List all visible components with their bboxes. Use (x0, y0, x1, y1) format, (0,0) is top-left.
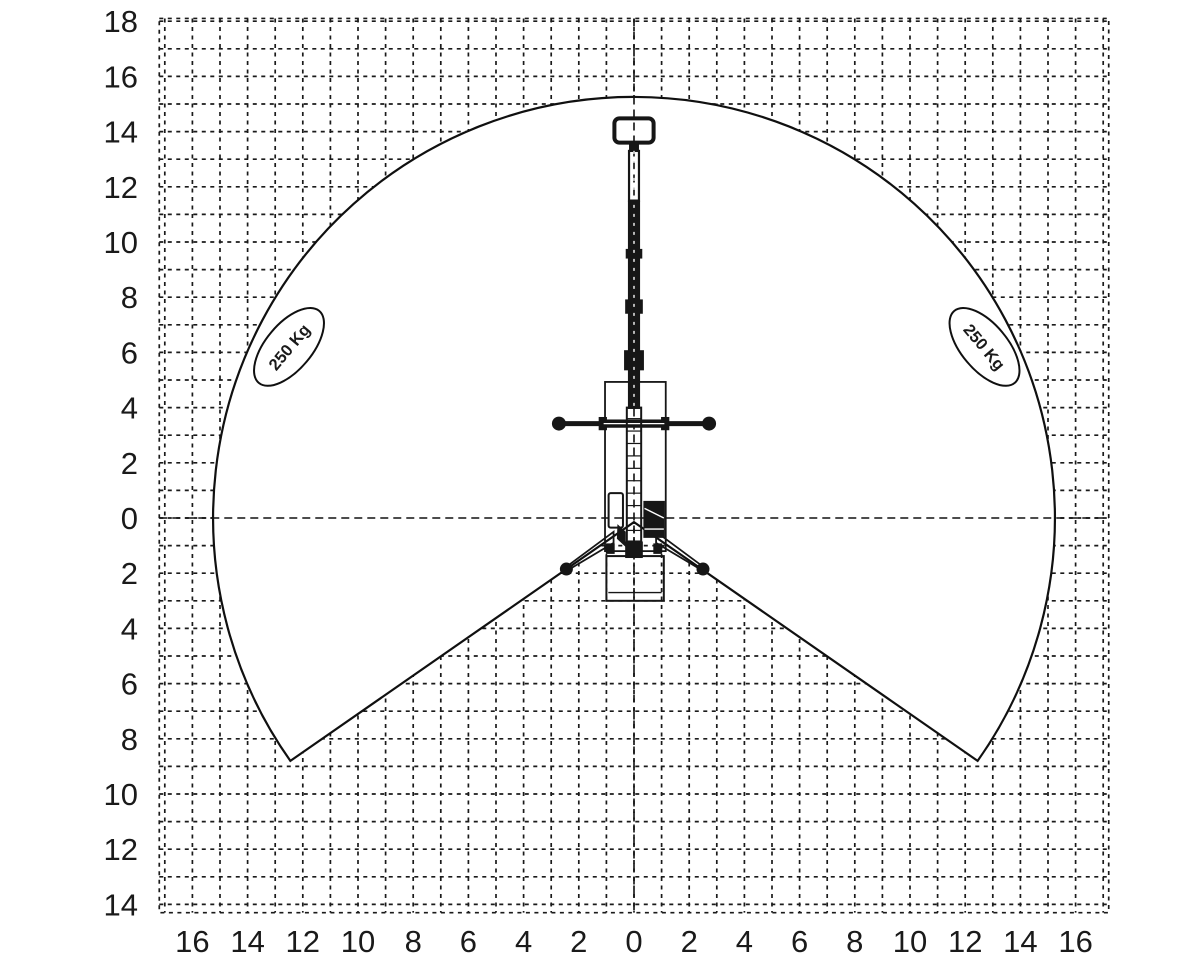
y-tick-label: 2 (121, 556, 138, 591)
y-tick-label: 6 (121, 667, 138, 702)
x-tick-label: 2 (570, 924, 587, 959)
x-tick-label: 16 (175, 924, 209, 959)
y-tick-label: 8 (121, 280, 138, 315)
y-tick-label: 2 (121, 446, 138, 481)
y-tick-label: 4 (121, 611, 138, 646)
boom-section (628, 201, 640, 253)
chassis-outline (606, 556, 663, 601)
y-tick-label: 10 (104, 777, 138, 812)
y-tick-label: 16 (104, 59, 138, 94)
beam-knob-left (552, 417, 566, 431)
y-tick-label: 18 (104, 4, 138, 39)
x-tick-label: 12 (286, 924, 320, 959)
beam-knob-right (702, 417, 716, 431)
y-axis-labels: 1816141210864202468101214 (104, 4, 138, 922)
turret-block (643, 501, 665, 538)
y-tick-label: 10 (104, 225, 138, 260)
outrigger-foot-right (697, 563, 710, 576)
x-tick-label: 8 (846, 924, 863, 959)
x-tick-label: 16 (1058, 924, 1092, 959)
y-tick-label: 12 (104, 832, 138, 867)
y-tick-label: 6 (121, 335, 138, 370)
y-tick-label: 0 (121, 501, 138, 536)
y-tick-label: 14 (104, 887, 138, 922)
x-tick-label: 4 (736, 924, 753, 959)
x-tick-label: 6 (791, 924, 808, 959)
y-tick-label: 12 (104, 170, 138, 205)
x-tick-label: 4 (515, 924, 532, 959)
x-tick-label: 8 (405, 924, 422, 959)
working-envelope-diagram: 250 Kg250 Kg1816141210864202468101214161… (0, 0, 1200, 964)
x-tick-label: 6 (460, 924, 477, 959)
outrigger-foot-left (560, 563, 573, 576)
x-tick-label: 12 (948, 924, 982, 959)
y-tick-label: 14 (104, 115, 138, 150)
envelope-chart: 250 Kg250 Kg1816141210864202468101214161… (0, 0, 1200, 964)
y-tick-label: 8 (121, 722, 138, 757)
y-tick-label: 4 (121, 391, 138, 426)
x-axis-labels: 1614121086420246810121416 (175, 924, 1093, 959)
x-tick-label: 2 (681, 924, 698, 959)
x-tick-label: 14 (230, 924, 264, 959)
x-tick-label: 14 (1003, 924, 1037, 959)
boom-pivot (625, 541, 643, 558)
x-tick-label: 10 (893, 924, 927, 959)
x-tick-label: 0 (625, 924, 642, 959)
x-tick-label: 10 (341, 924, 375, 959)
